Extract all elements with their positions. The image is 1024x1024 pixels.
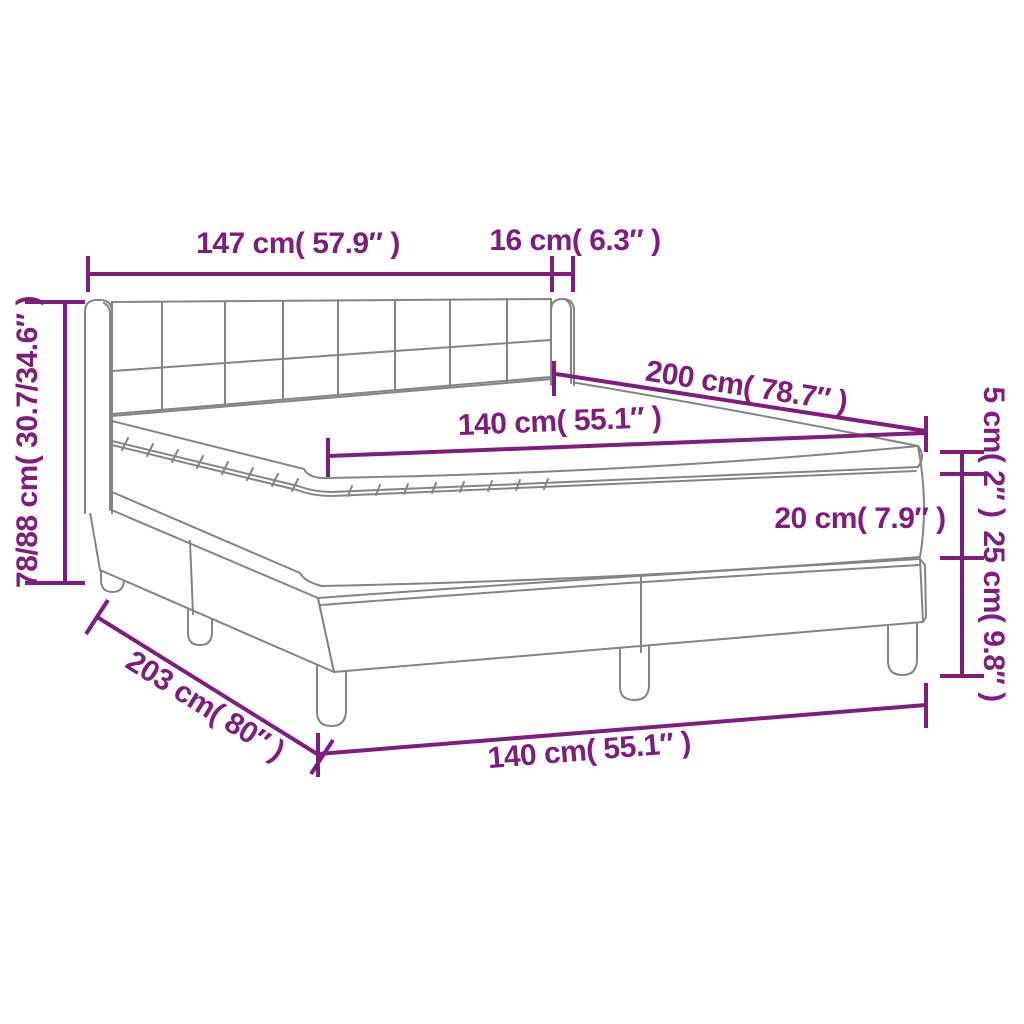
label-topper-thickness: 5 cm( 2″ ): [977, 386, 1010, 517]
headboard-left-wing: [85, 300, 112, 513]
label-base-width: 140 cm( 55.1″ ): [486, 726, 692, 775]
label-wing-depth: 16 cm( 6.3″ ): [489, 224, 660, 257]
label-mattress-thickness: 20 cm( 7.9″ ): [774, 502, 945, 535]
bed-dimension-diagram: 147 cm( 57.9″ ) 16 cm( 6.3″ ) 78/88 cm( …: [0, 0, 1024, 1024]
diagram-canvas: 147 cm( 57.9″ ) 16 cm( 6.3″ ) 78/88 cm( …: [0, 0, 1024, 1024]
dim-headboard-width: [88, 256, 573, 292]
label-overall-height: 78/88 cm( 30.7/34.6″ ): [11, 296, 44, 588]
label-headboard-width: 147 cm( 57.9″ ): [196, 227, 400, 260]
label-base-height: 25 cm( 9.8″ ): [977, 530, 1010, 701]
label-overall-length: 203 cm( 80″ ): [120, 644, 290, 767]
